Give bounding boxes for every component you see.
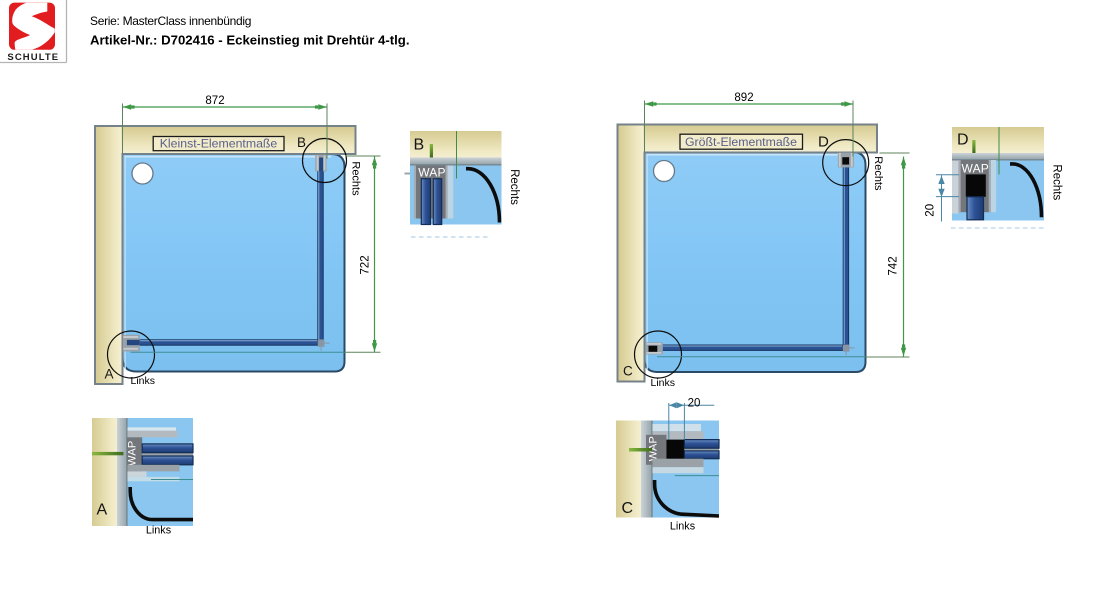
svg-text:SCHULTE: SCHULTE <box>7 52 59 63</box>
svg-text:Links: Links <box>670 520 696 532</box>
svg-text:Links: Links <box>651 377 676 389</box>
svg-text:Links: Links <box>131 375 156 387</box>
svg-text:Serie: MasterClass innenbündig: Serie: MasterClass innenbündig <box>90 14 251 28</box>
svg-text:Rechts: Rechts <box>872 156 884 191</box>
svg-text:20: 20 <box>688 397 701 409</box>
svg-text:Rechts: Rechts <box>350 161 362 196</box>
svg-text:Rechts: Rechts <box>508 169 520 205</box>
svg-text:722: 722 <box>359 255 371 274</box>
svg-text:892: 892 <box>734 92 753 104</box>
svg-text:Rechts: Rechts <box>1051 164 1063 200</box>
svg-text:WAP: WAP <box>126 441 138 466</box>
svg-text:C: C <box>622 500 634 517</box>
svg-text:742: 742 <box>888 256 900 275</box>
svg-text:WAP: WAP <box>418 165 446 179</box>
svg-text:B: B <box>414 137 425 154</box>
svg-text:D: D <box>818 134 829 151</box>
svg-text:20: 20 <box>925 204 937 217</box>
svg-text:WAP: WAP <box>962 161 990 175</box>
svg-text:Kleinst-Elementmaße: Kleinst-Elementmaße <box>160 137 278 151</box>
svg-text:Links: Links <box>146 525 172 537</box>
svg-text:B: B <box>297 135 306 150</box>
svg-text:872: 872 <box>205 95 224 107</box>
svg-text:A: A <box>97 502 108 519</box>
svg-text:C: C <box>623 364 633 379</box>
svg-text:D: D <box>957 132 969 149</box>
svg-text:Artikel-Nr.: D702416 - Eckeins: Artikel-Nr.: D702416 - Eckeinstieg mit D… <box>90 33 410 48</box>
svg-text:A: A <box>105 367 114 382</box>
svg-text:Größt-Elementmaße: Größt-Elementmaße <box>685 135 797 149</box>
